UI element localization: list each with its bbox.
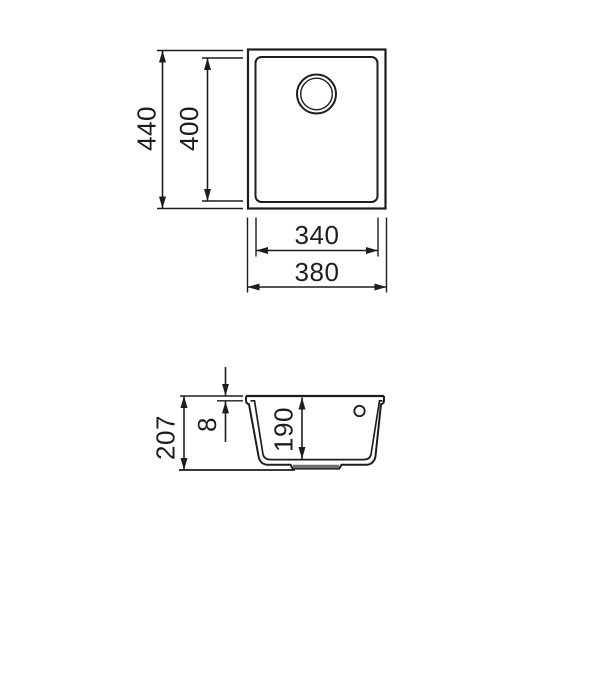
top-view: 440 400 340 380	[132, 50, 387, 293]
sink-outer-rect	[248, 50, 386, 209]
dim-190-label: 190	[269, 407, 299, 452]
dim-380-label: 380	[295, 257, 340, 287]
dim-8-label: 8	[192, 417, 222, 432]
dim-340-label: 340	[295, 220, 340, 250]
dim-400-label: 400	[174, 106, 204, 151]
technical-drawing: 440 400 340 380	[0, 0, 600, 689]
drawing-canvas: 440 400 340 380	[0, 0, 600, 689]
dim-440-label: 440	[132, 106, 162, 151]
dim-207-label: 207	[151, 415, 181, 460]
overflow-hole-circle	[354, 406, 364, 416]
section-view: 207 8 190	[151, 367, 385, 470]
